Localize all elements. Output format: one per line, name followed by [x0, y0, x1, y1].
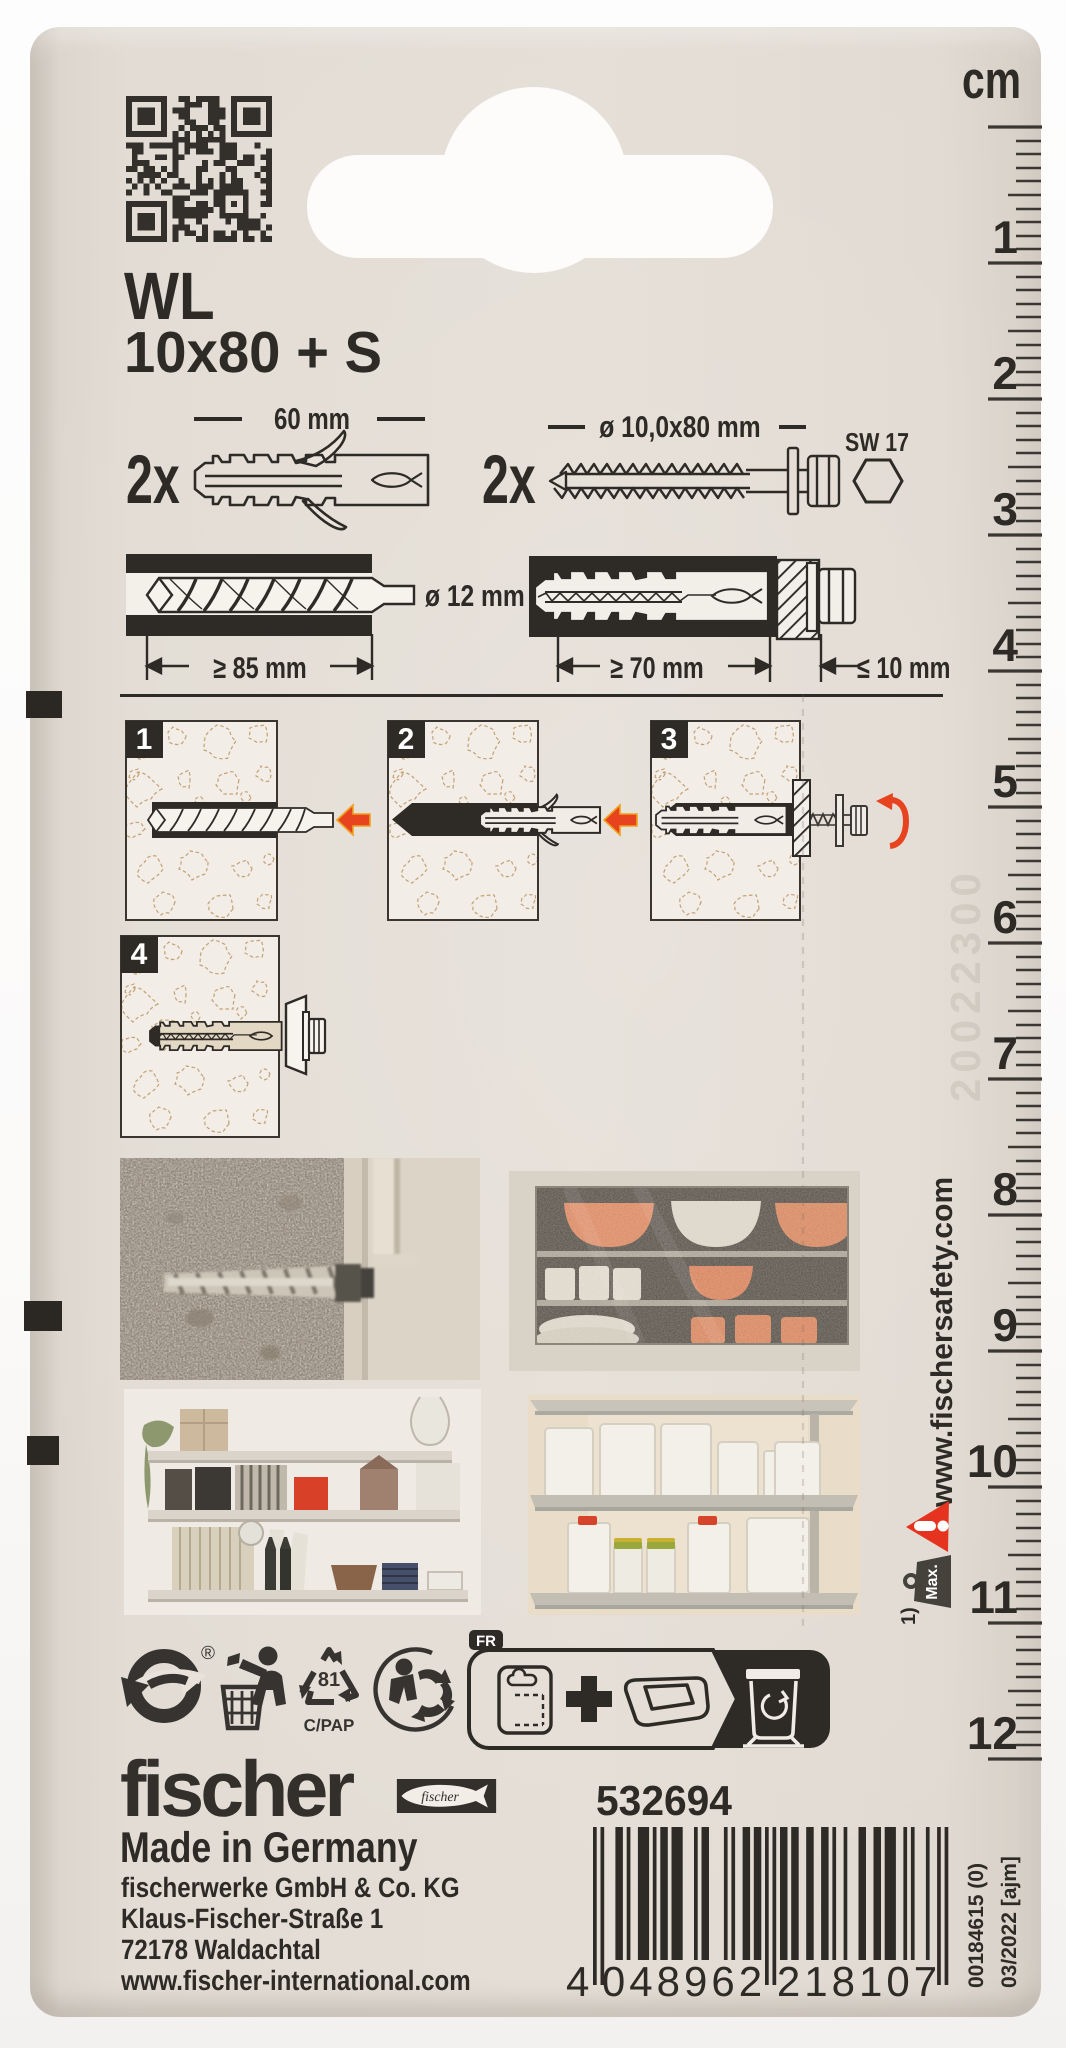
svg-text:4: 4 — [131, 938, 148, 971]
svg-text:4: 4 — [566, 1958, 589, 2002]
svg-text:fischer: fischer — [421, 1790, 459, 1805]
svg-text:12: 12 — [967, 1707, 1018, 1759]
svg-text:2: 2 — [992, 347, 1018, 399]
svg-text:1: 1 — [136, 723, 153, 756]
svg-text:4: 4 — [992, 619, 1018, 671]
svg-text:5: 5 — [992, 755, 1018, 807]
svg-text:FR: FR — [476, 1633, 496, 1650]
svg-text:2: 2 — [398, 723, 415, 756]
svg-text:1: 1 — [992, 211, 1018, 263]
svg-text:048962: 048962 — [602, 1958, 766, 2002]
svg-text:9: 9 — [992, 1299, 1018, 1351]
svg-text:Max.: Max. — [924, 1564, 941, 1600]
svg-text:81: 81 — [318, 1669, 340, 1691]
svg-text:6: 6 — [992, 891, 1018, 943]
svg-text:3: 3 — [992, 483, 1018, 535]
svg-text:C/PAP: C/PAP — [304, 1716, 355, 1735]
svg-text:218107: 218107 — [777, 1958, 941, 2002]
svg-text:10: 10 — [967, 1435, 1018, 1487]
svg-text:®: ® — [201, 1643, 215, 1664]
svg-text:3: 3 — [661, 723, 678, 756]
svg-text:8: 8 — [992, 1163, 1018, 1215]
svg-text:7: 7 — [992, 1027, 1018, 1079]
svg-text:11: 11 — [969, 1571, 1018, 1623]
